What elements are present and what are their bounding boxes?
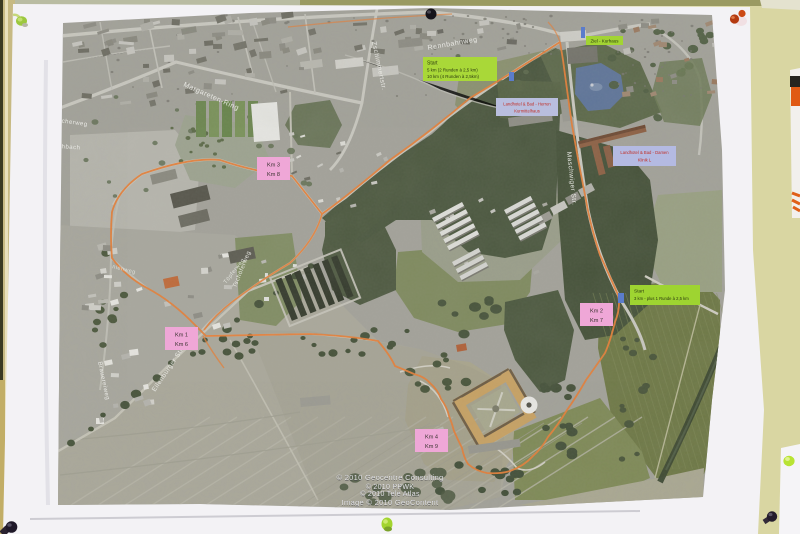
svg-text:Start: Start (427, 61, 438, 67)
svg-text:Kurmittelhaus: Kurmittelhaus (514, 109, 540, 114)
svg-text:Landhotel & Bad - Herren: Landhotel & Bad - Herren (503, 102, 551, 107)
svg-text:3 km - plus 1 Runde à 2,5 km: 3 km - plus 1 Runde à 2,5 km (634, 296, 689, 301)
svg-text:Klinik L: Klinik L (638, 158, 652, 163)
svg-text:Km 6: Km 6 (175, 342, 188, 348)
svg-text:Ziel - Kurhaus: Ziel - Kurhaus (590, 39, 619, 44)
svg-text:Km 3: Km 3 (267, 163, 280, 169)
svg-text:5 km (2 Runden à 2,5 km): 5 km (2 Runden à 2,5 km) (427, 68, 478, 73)
svg-text:Km 2: Km 2 (590, 309, 603, 315)
svg-text:Start: Start (634, 289, 645, 295)
svg-text:Km 7: Km 7 (590, 318, 603, 324)
svg-text:Km 1: Km 1 (175, 333, 188, 339)
svg-text:Landhotel & Bad - Damen: Landhotel & Bad - Damen (620, 150, 669, 155)
svg-text:Km 8: Km 8 (267, 172, 280, 178)
svg-text:10 km (4 Runden à 2,5km): 10 km (4 Runden à 2,5km) (427, 74, 480, 79)
svg-text:Km 4: Km 4 (425, 435, 438, 441)
svg-text:Km 9: Km 9 (425, 444, 438, 450)
